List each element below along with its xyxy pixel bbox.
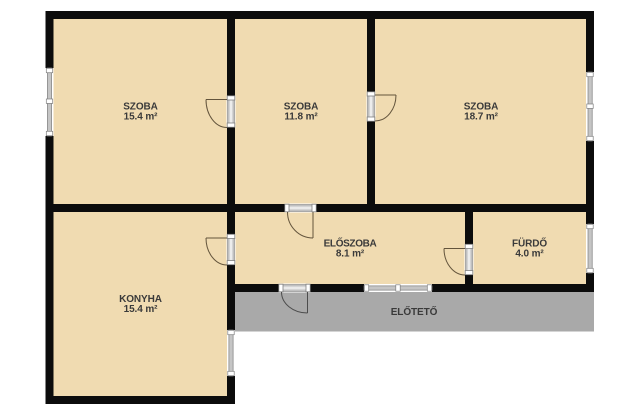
svg-text:ELŐTETŐ: ELŐTETŐ [391, 305, 438, 318]
svg-text:18.7 m²: 18.7 m² [464, 112, 499, 123]
svg-text:15.4 m²: 15.4 m² [124, 304, 159, 315]
svg-text:8.1 m²: 8.1 m² [336, 249, 365, 260]
svg-text:15.4 m²: 15.4 m² [124, 112, 159, 123]
svg-text:4.0 m²: 4.0 m² [515, 249, 544, 260]
svg-text:11.8 m²: 11.8 m² [284, 112, 318, 123]
